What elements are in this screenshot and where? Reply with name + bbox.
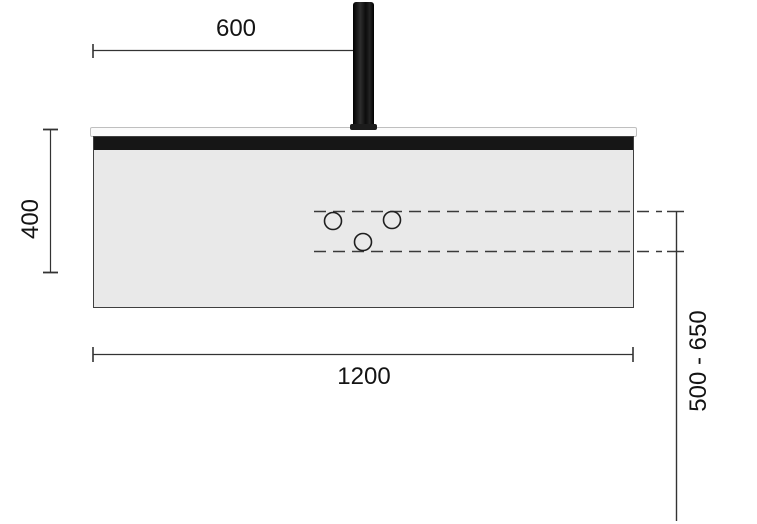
technical-drawing: 600 400 1200 500 - 650 xyxy=(0,0,757,524)
dim-label-bottom-width: 1200 xyxy=(337,365,390,389)
faucet-base xyxy=(350,124,377,130)
dimension-bottom-width xyxy=(93,347,633,362)
mounting-reference-lines xyxy=(314,212,684,252)
dimension-overlay xyxy=(0,0,757,524)
faucet-spout xyxy=(353,2,374,126)
dimension-left-height xyxy=(43,129,58,273)
dim-label-left-height: 400 xyxy=(19,199,43,239)
dimension-top-offset xyxy=(93,44,356,58)
mounting-hole xyxy=(355,234,372,251)
mounting-hole xyxy=(384,212,401,229)
dim-label-right-mount-range: 500 - 650 xyxy=(687,310,711,411)
mounting-holes xyxy=(325,212,401,251)
mounting-hole xyxy=(325,213,342,230)
dim-label-top-offset: 600 xyxy=(216,17,256,41)
